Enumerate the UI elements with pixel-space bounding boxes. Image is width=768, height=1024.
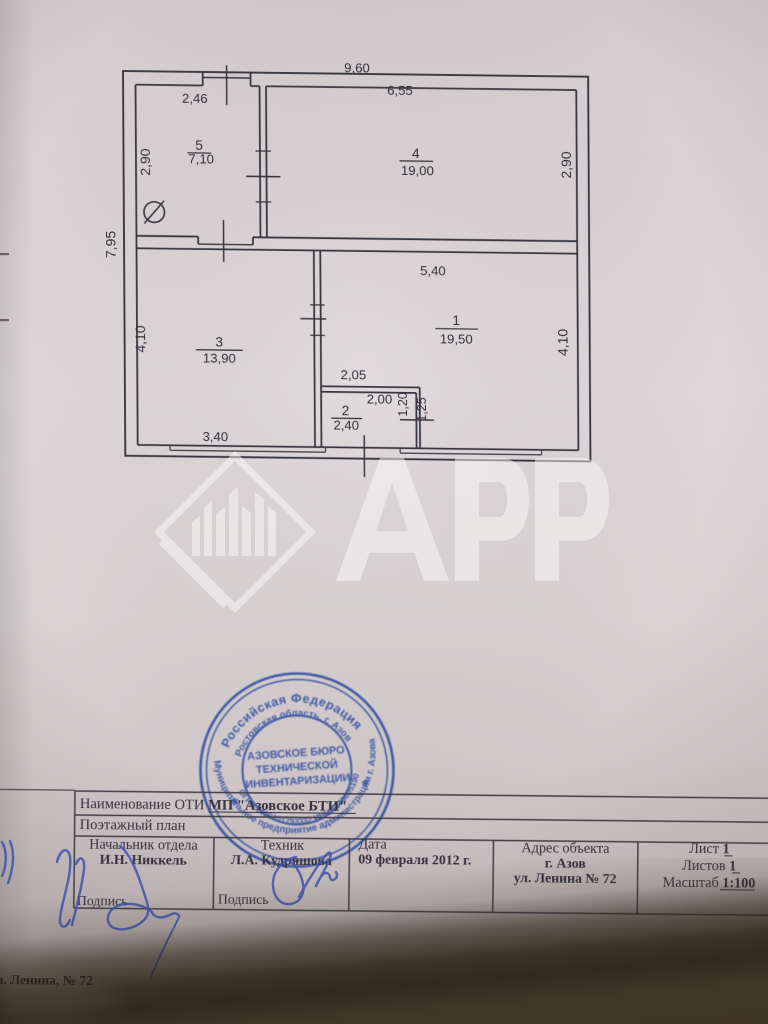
svg-text:2,90: 2,90	[558, 151, 574, 179]
svg-text:2,40: 2,40	[333, 417, 359, 432]
svg-text:3: 3	[215, 335, 223, 350]
svg-text:1: 1	[452, 313, 460, 328]
svg-text:Адрес объекта: Адрес объекта	[521, 840, 610, 857]
svg-text:1,25: 1,25	[415, 397, 429, 422]
svg-text:9,60: 9,60	[344, 60, 370, 75]
svg-text:13,90: 13,90	[203, 350, 236, 365]
svg-text:Лист 1: Лист 1	[689, 841, 730, 857]
svg-text:1,20: 1,20	[396, 392, 410, 417]
svg-text:л. Ленина, № 72: л. Ленина, № 72	[0, 972, 93, 988]
svg-text:2: 2	[342, 403, 350, 418]
svg-text:4,10: 4,10	[555, 329, 571, 357]
svg-text:2,90: 2,90	[137, 148, 153, 176]
svg-text:3,40: 3,40	[202, 429, 228, 444]
svg-text:2,46: 2,46	[182, 91, 208, 106]
svg-text:Техник: Техник	[261, 837, 305, 853]
svg-text:4: 4	[412, 146, 420, 161]
svg-text:19,00: 19,00	[401, 163, 434, 178]
svg-text:19,50: 19,50	[440, 331, 473, 346]
svg-text:4,10: 4,10	[132, 325, 148, 353]
svg-text:✱: ✱	[361, 778, 371, 790]
svg-text:6,55: 6,55	[387, 83, 413, 98]
svg-text:Дата: Дата	[358, 836, 387, 852]
svg-text:5,40: 5,40	[420, 263, 446, 278]
svg-text:2,00: 2,00	[367, 391, 393, 406]
svg-text:2,05: 2,05	[341, 367, 367, 382]
svg-text:7,10: 7,10	[188, 151, 214, 166]
svg-text:Поэтажный план: Поэтажный план	[80, 817, 186, 834]
svg-text:7,95: 7,95	[103, 230, 119, 258]
